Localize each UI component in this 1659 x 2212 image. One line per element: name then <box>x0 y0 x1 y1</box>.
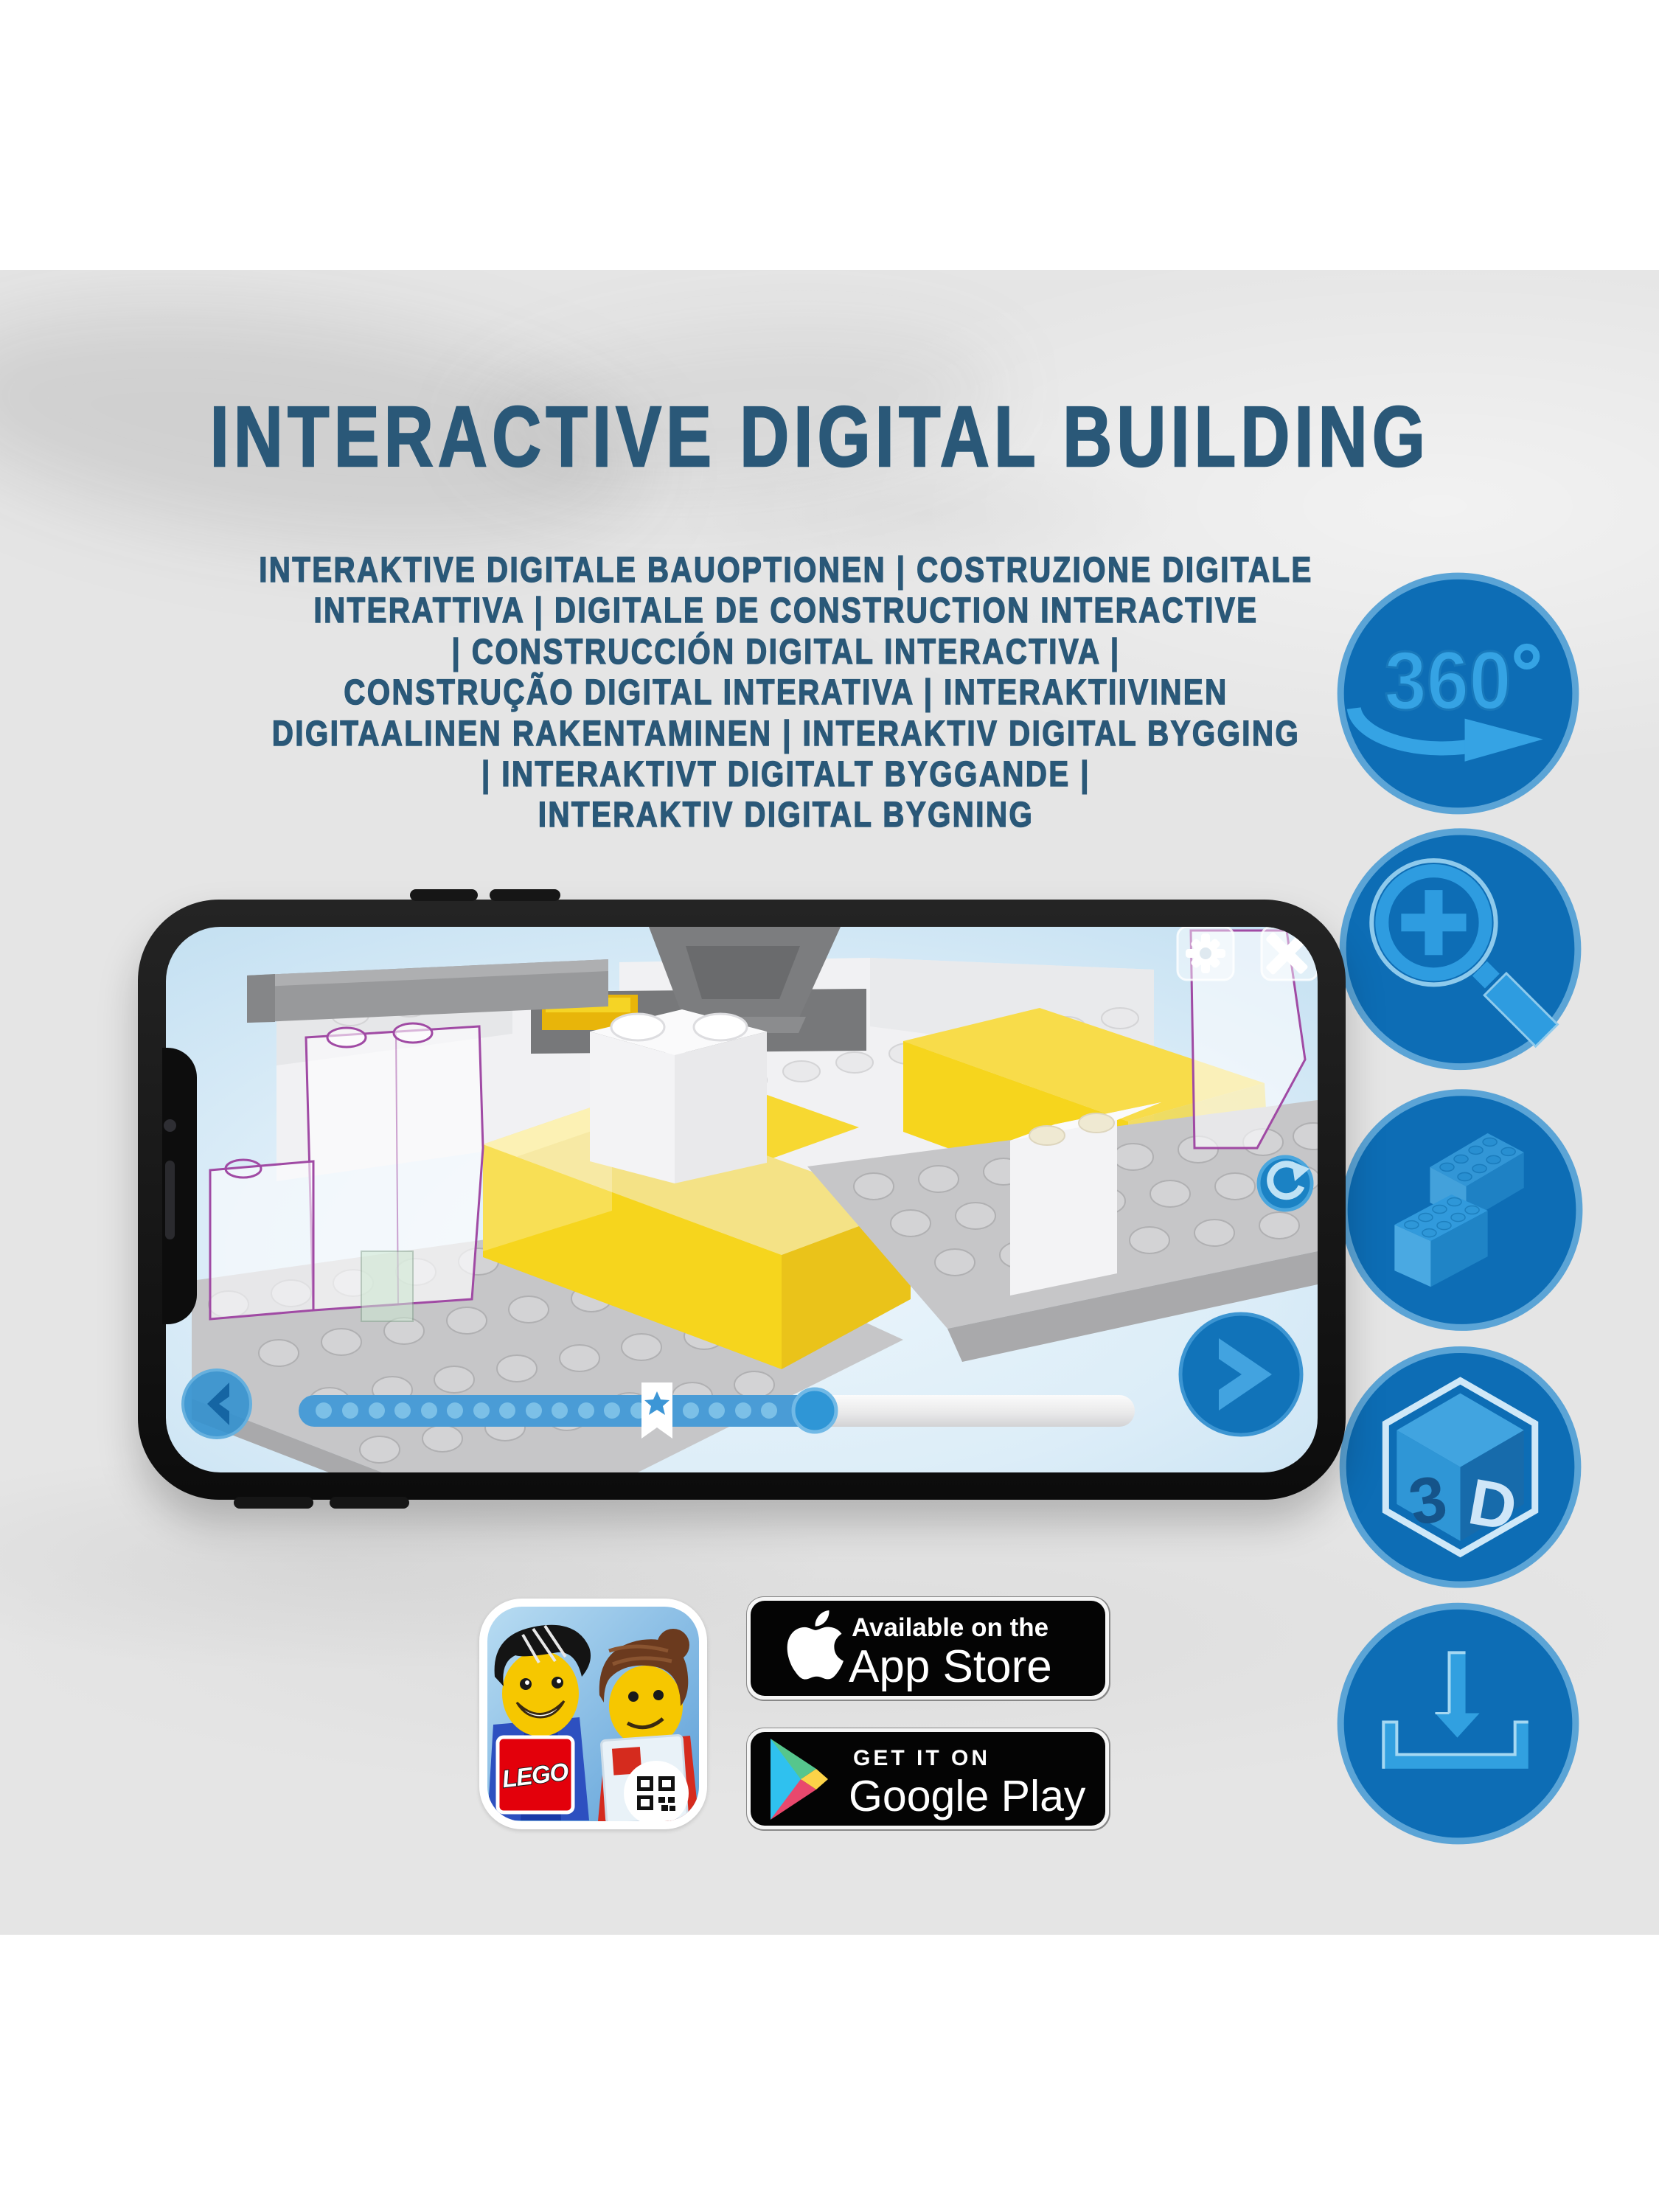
svg-text:360: 360 <box>1384 634 1511 727</box>
svg-text:App Store: App Store <box>849 1641 1052 1692</box>
svg-text:Available on the: Available on the <box>852 1613 1048 1642</box>
svg-text:GET IT ON: GET IT ON <box>853 1746 990 1770</box>
svg-text:Google Play: Google Play <box>849 1772 1086 1820</box>
